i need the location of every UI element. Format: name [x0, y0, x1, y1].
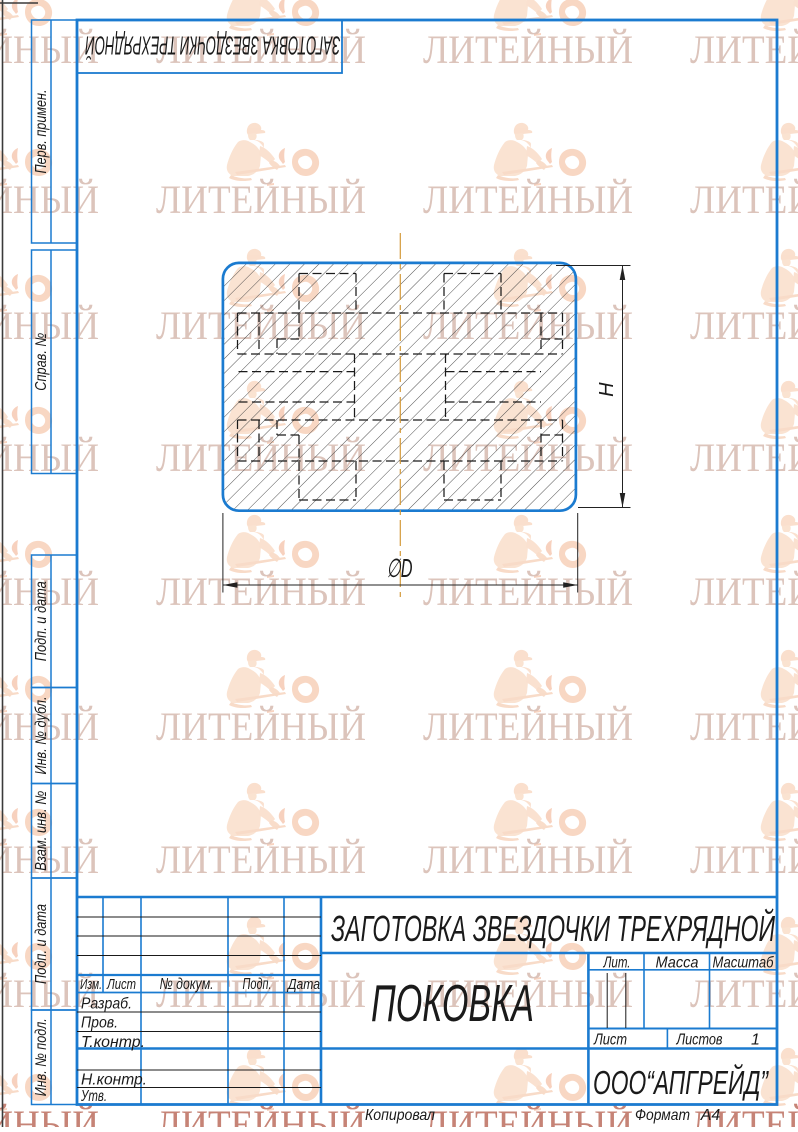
svg-text:ЗАГОТОВКА ЗВЕЗДОЧКИ ТРЕХРЯДНОЙ: ЗАГОТОВКА ЗВЕЗДОЧКИ ТРЕХРЯДНОЙ [331, 907, 775, 949]
svg-text:Инв. № дубл.: Инв. № дубл. [33, 697, 50, 775]
svg-text:Инв. № подл.: Инв. № подл. [33, 1018, 50, 1096]
svg-text:Справ. №: Справ. № [33, 333, 50, 391]
svg-text:Лист: Лист [593, 1032, 627, 1049]
svg-text:Перв. примен.: Перв. примен. [33, 90, 50, 174]
svg-text:Изм.: Изм. [80, 976, 102, 993]
svg-text:Разраб.: Разраб. [81, 996, 132, 1013]
svg-text:Т.контр.: Т.контр. [81, 1034, 145, 1051]
svg-text:Дата: Дата [286, 976, 320, 993]
svg-text:Масса: Масса [656, 955, 699, 972]
svg-text:Формат: Формат [635, 1107, 690, 1124]
svg-text:№ докум.: № докум. [160, 976, 214, 993]
svg-text:1: 1 [751, 1032, 760, 1049]
svg-text:ЗАГОТОВКА ЗВЕЗДОЧКИ ТРЕХРЯДНОЙ: ЗАГОТОВКА ЗВЕЗДОЧКИ ТРЕХРЯДНОЙ [85, 31, 340, 61]
svg-text:∅D: ∅D [387, 553, 413, 583]
svg-text:А4: А4 [700, 1107, 721, 1124]
svg-text:Утв.: Утв. [80, 1088, 107, 1105]
svg-text:H: H [596, 382, 618, 397]
svg-text:ПОКОВКА: ПОКОВКА [371, 975, 534, 1033]
svg-text:Подп.: Подп. [243, 976, 272, 993]
svg-text:Лист: Лист [106, 976, 136, 993]
svg-text:Н.контр.: Н.контр. [81, 1072, 147, 1089]
svg-text:ООО“АПГРЕЙД”: ООО“АПГРЕЙД” [593, 1063, 769, 1101]
svg-text:Копировал: Копировал [365, 1107, 435, 1124]
svg-text:Подп. и дата: Подп. и дата [33, 581, 50, 661]
svg-text:Взам. инв. №: Взам. инв. № [33, 791, 50, 871]
svg-text:Подп. и дата: Подп. и дата [33, 904, 50, 984]
svg-text:Масштаб: Масштаб [713, 955, 775, 972]
svg-text:Пров.: Пров. [81, 1015, 118, 1032]
svg-text:Листов: Листов [676, 1032, 723, 1049]
svg-text:Лит.: Лит. [603, 955, 631, 972]
